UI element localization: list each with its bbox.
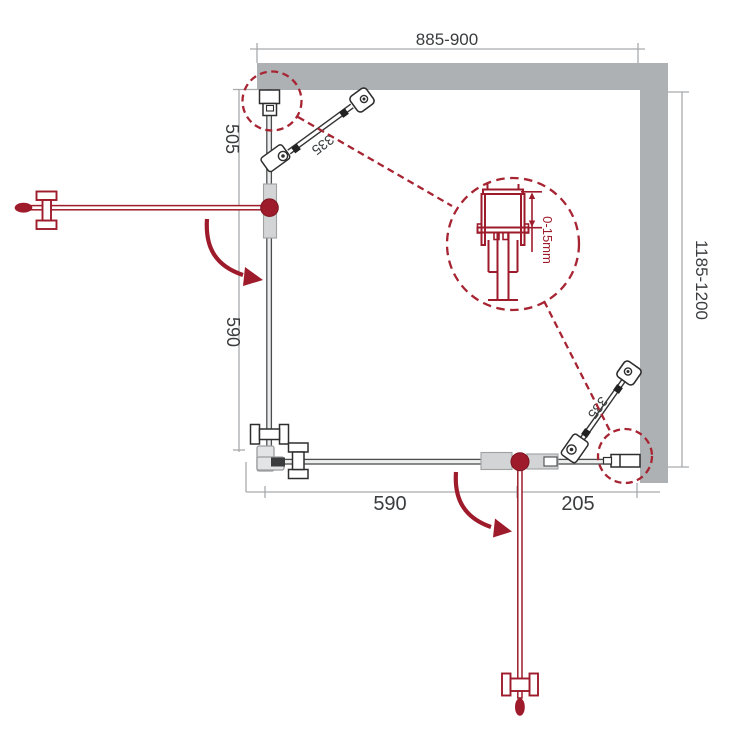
- dim-left-upper-label: 505: [222, 124, 242, 154]
- door-hinge-bottom: [511, 453, 529, 471]
- glass-panel-bottom: [267, 459, 640, 464]
- corner-profile-bottom-left: [257, 446, 285, 471]
- wall-right: [640, 90, 668, 483]
- wall-bracket-top-left: [260, 90, 280, 116]
- detail-circle-center: [447, 178, 579, 310]
- wall-top: [257, 63, 668, 90]
- dim-right-height-label: 1185-1200: [692, 240, 711, 320]
- installation-diagram: 885-900 1185-1200 505 590 590 205 335: [0, 0, 730, 730]
- door-hinge-left: [261, 199, 279, 217]
- diagram-canvas: 885-900 1185-1200 505 590 590 205 335: [0, 0, 730, 730]
- dimension-lines: [233, 43, 689, 498]
- detail-profile-section: [478, 184, 529, 300]
- detail-leader-top: [298, 117, 452, 206]
- dim-bottom-right-label: 205: [561, 493, 594, 515]
- swing-arrow-left: [207, 219, 263, 286]
- detail-adjustment-label: 0-15mm: [540, 216, 555, 264]
- brace-top-length-label: 335: [309, 132, 337, 159]
- swing-arrow-bottom: [456, 472, 512, 538]
- wall-bracket-bottom-right: [604, 455, 641, 468]
- door-bottom-edge-tip: [515, 698, 525, 716]
- detail-callouts: [243, 72, 653, 484]
- dim-bottom-left-label: 590: [373, 493, 406, 515]
- dim-top-width-label: 885-900: [416, 30, 478, 49]
- glass-panel-left: [267, 90, 272, 460]
- door-left-edge-tip: [15, 203, 33, 213]
- dim-left-lower-label: 590: [223, 317, 243, 347]
